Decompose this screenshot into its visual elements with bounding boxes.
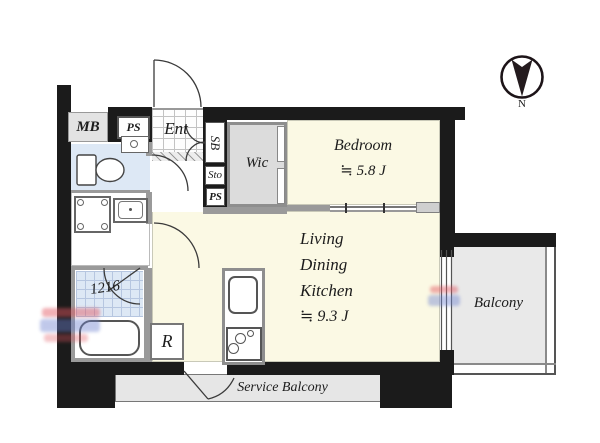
partition-toilet-washroom [71,190,150,193]
floor-plan: MB PS Ent SB Sto PS Wic 1216 R N Bedroom… [0,0,600,443]
pipe-space-label: PS [206,190,225,205]
wall-right-upper [440,107,455,237]
watermark-left [40,306,106,350]
compass [502,57,543,98]
balcony-railing-inner-line [545,247,547,375]
ldk-size: ≒ 9.3 J [300,304,420,330]
sliding-door-track-2 [330,210,418,212]
partition-wic-bottom [203,207,287,214]
wall-balcony-top [442,233,556,247]
washer-pan-corner-3 [77,223,84,230]
bedroom-name: Bedroom [288,133,438,159]
north-arrow-icon [512,60,533,97]
pipe-space-top-label: PS [117,117,150,138]
front-door-swing-arc [154,60,201,107]
sliding-door-tick-1 [345,203,347,213]
wall-bottom-right-chunk [380,362,452,408]
bedroom-label-block: Bedroom ≒ 5.8 J [288,133,438,185]
ldk-line3: Kitchen [300,278,420,304]
hallway-floor [152,161,203,212]
stove-burner-2 [228,343,239,354]
watermark-right [428,286,462,310]
balcony-railing-outer-line [554,247,556,375]
vanity-drain [129,208,132,211]
refrigerator-label: R [150,329,184,355]
sliding-door-tick-2 [383,203,385,213]
compass-north-label: N [512,97,532,111]
bedroom-size: ≒ 5.8 J [288,159,438,183]
walk-in-closet-label: Wic [227,150,287,176]
service-balcony-label: Service Balcony [180,378,385,398]
ldk-line1: Living [300,226,420,252]
meter-box-label: MB [68,112,108,142]
sliding-door-track-1 [330,206,418,208]
sliding-door-pocket [416,202,440,213]
compass-circle [502,57,543,98]
stove-burner-1 [235,333,246,344]
wall-top [203,107,465,120]
toilet-hand-basin-bowl [130,140,138,148]
balcony-railing-bottom-outer [452,373,556,375]
entrance-label: Ent [154,116,198,142]
entrance-threshold [152,108,203,110]
balcony-label: Balcony [452,292,545,314]
wall-bottom-a [57,362,184,375]
partition-bedroom-ldk-bar [287,205,330,211]
stove-burner-small [247,330,254,337]
washer-pan-corner-2 [101,199,108,206]
kitchen-sink [228,276,258,314]
ldk-label-block: Living Dining Kitchen ≒ 9.3 J [300,226,420,334]
washer-pan-corner-4 [101,223,108,230]
balcony-railing-bottom-inner [452,363,556,365]
storage-label: Sto [205,167,225,184]
ldk-line2: Dining [300,252,420,278]
washer-pan-corner-1 [77,199,84,206]
